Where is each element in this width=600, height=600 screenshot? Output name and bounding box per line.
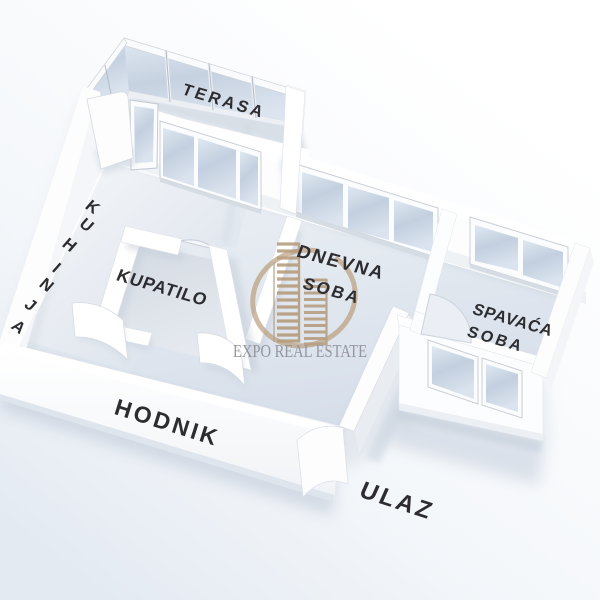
svg-text:EXPO REAL ESTATE: EXPO REAL ESTATE	[233, 341, 367, 361]
